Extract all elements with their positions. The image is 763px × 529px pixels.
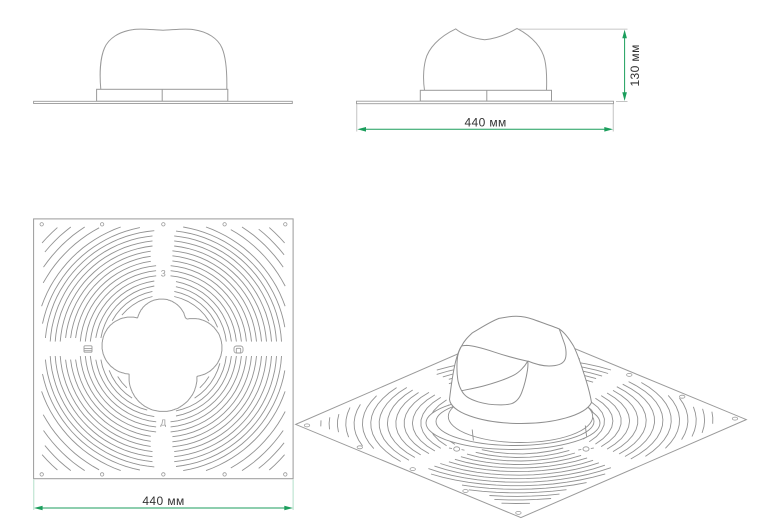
svg-text:Д: Д [160,418,166,428]
svg-text:130 мм: 130 мм [628,44,642,86]
svg-text:440 мм: 440 мм [464,115,506,129]
svg-text:440 мм: 440 мм [142,494,184,508]
svg-text:3: 3 [161,269,166,279]
